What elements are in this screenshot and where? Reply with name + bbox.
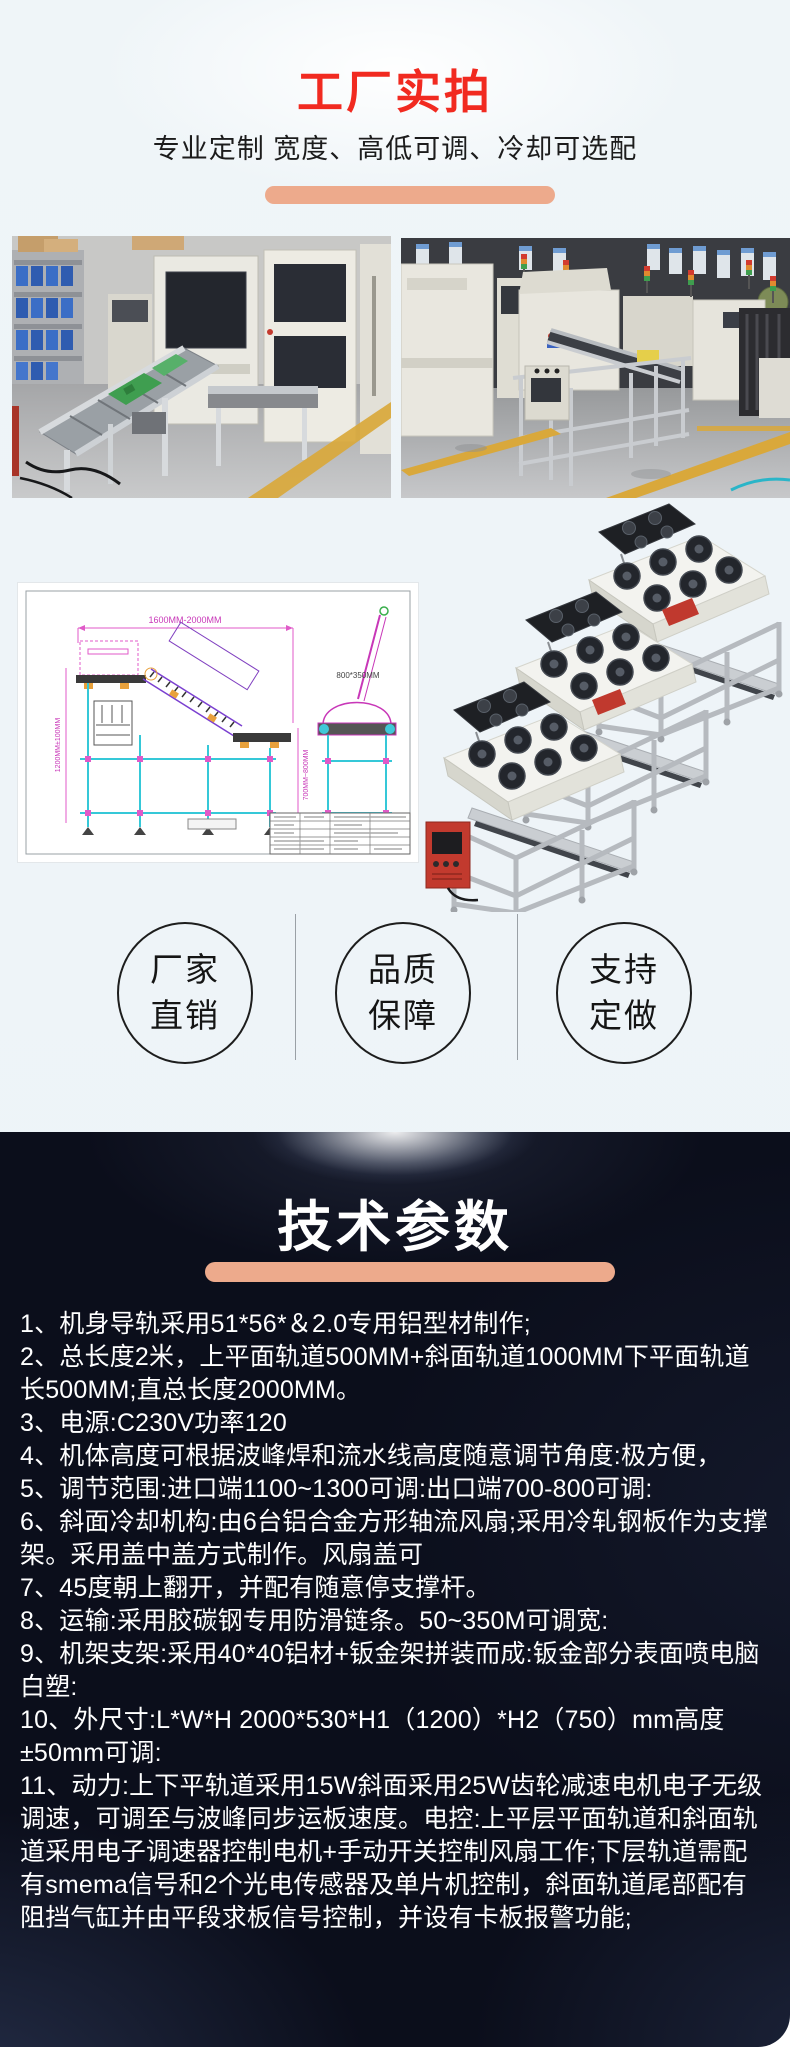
badge-label: 品质 (368, 947, 438, 993)
specs-title: 技术参数 (0, 1182, 790, 1262)
factory-photo-right (401, 238, 790, 498)
factory-photo-left (12, 236, 391, 498)
badge-divider (295, 914, 296, 1060)
spec-item: 11、动力:上下平轨道采用15W斜面采用25W齿轮减速电机电子无级调速，可调至与… (20, 1770, 772, 1935)
badge-label: 支持 (589, 947, 659, 993)
accent-bar (205, 1262, 615, 1282)
accent-bar (265, 186, 555, 204)
cad-drawing: 1600MM-2000MM 1200MM±100MM 700MM~800MM (18, 583, 418, 862)
factory-photo-left-illustration (12, 236, 391, 498)
product-render-illustration (424, 502, 790, 912)
spec-item: 4、机体高度可根据波峰焊和流水线高度随意调节角度:极方便， (20, 1440, 772, 1473)
page-subtitle: 专业定制 宽度、高低可调、冷却可选配 (0, 127, 790, 166)
tech-specs-section: 技术参数 1、机身导轨采用51*56*＆2.0专用铝型材制作; 2、总长度2米，… (0, 1132, 790, 2047)
badge-label: 保障 (368, 993, 438, 1039)
cad-drawing-illustration: 1600MM-2000MM 1200MM±100MM 700MM~800MM (18, 583, 418, 862)
specs-list: 1、机身导轨采用51*56*＆2.0专用铝型材制作; 2、总长度2米，上平面轨道… (20, 1308, 772, 1935)
factory-photo-right-illustration (401, 238, 790, 498)
spec-item: 6、斜面冷却机构:由6台铝合金方形轴流风扇;采用冷轧钢板作为支撑架。采用盖中盖方… (20, 1506, 772, 1572)
product-render (424, 502, 790, 912)
badge-divider (517, 914, 518, 1060)
spec-item: 9、机架支架:采用40*40铝材+钣金架拼装而成:钣金部分表面喷电脑白塑: (20, 1638, 772, 1704)
dim-left-label: 1200MM±100MM (55, 718, 62, 773)
page-title: 工厂实拍 (0, 56, 790, 122)
badge-quality-guarantee: 品质 保障 (335, 922, 471, 1064)
badge-label: 直销 (150, 993, 220, 1039)
dim-right-label: 700MM~800MM (303, 749, 310, 800)
spec-item: 3、电源:C230V功率120 (20, 1407, 772, 1440)
spec-item: 10、外尺寸:L*W*H 2000*530*H1（1200）*H2（750）mm… (20, 1704, 772, 1770)
dim-top-label: 1600MM-2000MM (148, 615, 221, 625)
spec-item: 1、机身导轨采用51*56*＆2.0专用铝型材制作; (20, 1308, 772, 1341)
badge-label: 厂家 (150, 947, 220, 993)
badge-factory-direct: 厂家 直销 (117, 922, 253, 1064)
spec-item: 8、运输:采用胶碳钢专用防滑链条。50~350M可调宽: (20, 1605, 772, 1638)
dim-end-view-label: 800*350MM (336, 671, 379, 680)
spec-item: 2、总长度2米，上平面轨道500MM+斜面轨道1000MM下平面轨道长500MM… (20, 1341, 772, 1407)
spec-item: 5、调节范围:进口端1100~1300可调:出口端700-800可调: (20, 1473, 772, 1506)
spec-item: 7、45度朝上翻开，并配有随意停支撑杆。 (20, 1572, 772, 1605)
badge-label: 定做 (589, 993, 659, 1039)
product-detail-page: 工厂实拍 专业定制 宽度、高低可调、冷却可选配 (0, 0, 790, 2047)
badge-custom-made: 支持 定做 (556, 922, 692, 1064)
